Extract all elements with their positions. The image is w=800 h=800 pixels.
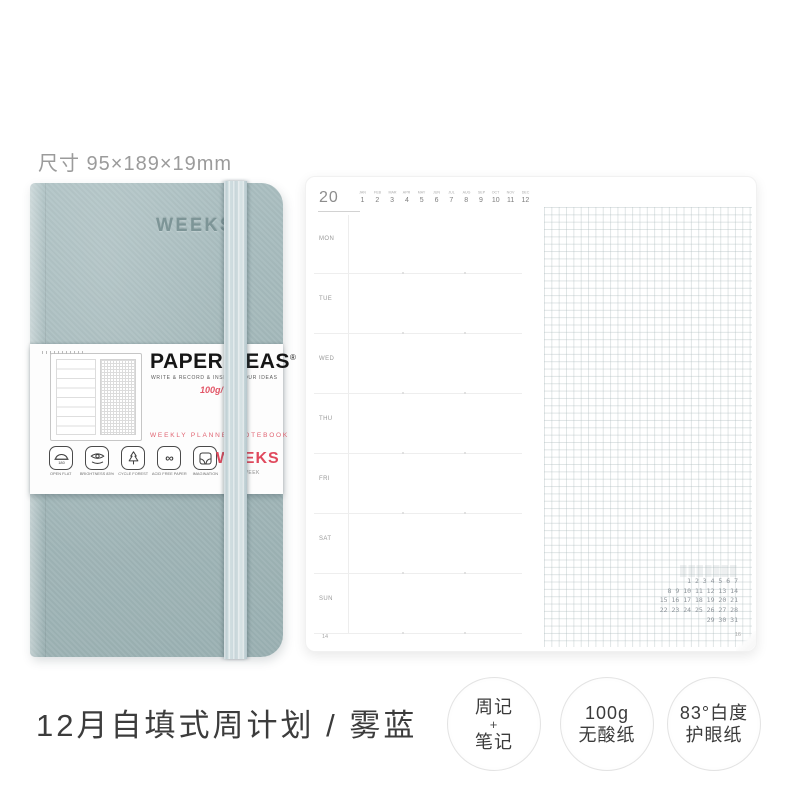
month-abbr: SEP bbox=[476, 191, 485, 195]
month-abbr: JAN bbox=[358, 191, 367, 195]
cycle-forest-icon bbox=[121, 446, 145, 470]
year-prefix: 20 bbox=[319, 189, 339, 207]
feature-imagination: IMAGINATION bbox=[192, 446, 218, 478]
month-number: 12 bbox=[519, 197, 532, 204]
mini-calendar-row: 29 30 31 bbox=[660, 616, 738, 626]
feature-cycle-forest: CYCLE FOREST bbox=[120, 446, 146, 478]
page-corner-curl bbox=[736, 631, 756, 651]
registered-mark: ® bbox=[290, 353, 296, 362]
mini-calendar-row: 15 16 17 18 19 20 21 bbox=[660, 596, 738, 606]
thumbnail-tick-marks bbox=[42, 351, 86, 354]
month-cell: MAY5 bbox=[415, 190, 428, 204]
product-caption: 12月自填式周计划 / 雾蓝 bbox=[36, 700, 417, 745]
row-separator bbox=[314, 273, 522, 274]
mini-calendar: 1 2 3 4 5 6 7 8 9 10 11 12 13 14 15 16 1… bbox=[660, 565, 738, 626]
badge-line: 笔记 bbox=[475, 731, 513, 753]
month-cell: DEC12 bbox=[519, 190, 532, 204]
thumbnail-week-rows bbox=[56, 359, 96, 435]
row-separator bbox=[314, 453, 522, 454]
brand-name: PAPERIDEAS bbox=[150, 350, 290, 373]
row-separator bbox=[314, 633, 522, 634]
month-number: 6 bbox=[430, 197, 443, 204]
badge-line: 83°白度 bbox=[680, 702, 748, 724]
svg-text:180: 180 bbox=[58, 460, 65, 465]
svg-text:∞: ∞ bbox=[165, 451, 173, 465]
row-separator bbox=[314, 573, 522, 574]
month-abbr: DEC bbox=[521, 191, 530, 195]
product-photo: 尺寸 95×189×19mm WEEKS PAPERIDEAS® WRITE &… bbox=[0, 0, 800, 800]
month-number: 10 bbox=[489, 197, 502, 204]
feature-label: ACID FREE PAPER bbox=[152, 472, 187, 477]
thumbnail-grid bbox=[100, 359, 136, 435]
day-label-thu: THU bbox=[319, 416, 333, 422]
month-abbr: JUL bbox=[447, 191, 456, 195]
day-label-sun: SUN bbox=[319, 596, 333, 602]
month-cell: APR4 bbox=[400, 190, 413, 204]
feature-label: IMAGINATION bbox=[192, 472, 217, 477]
day-label-sat: SAT bbox=[319, 536, 331, 542]
month-abbr: JUN bbox=[432, 191, 441, 195]
mini-calendar-header bbox=[680, 565, 738, 577]
month-cell: JAN1 bbox=[356, 190, 369, 204]
month-number: 5 bbox=[415, 197, 428, 204]
day-label-wed: WED bbox=[319, 356, 334, 362]
planner-thumbnail bbox=[50, 353, 142, 441]
month-cell: AUG8 bbox=[460, 190, 473, 204]
month-cell: NOV11 bbox=[504, 190, 517, 204]
badge-whiteness: 83°白度 护眼纸 bbox=[667, 677, 761, 771]
size-label: 尺寸 95×189×19mm bbox=[38, 147, 232, 176]
month-abbr: MAY bbox=[417, 191, 426, 195]
month-cell: JUN6 bbox=[430, 190, 443, 204]
imagination-icon bbox=[193, 446, 217, 470]
product-line-label: WEEKLY PLANNER NOTEBOOK bbox=[150, 432, 289, 439]
month-cell: MAR3 bbox=[386, 190, 399, 204]
feature-label: BRIGHTNESS 83% bbox=[80, 472, 114, 477]
feature-icons-row: 180 OPEN FLAT BRIGHTNESS 83% bbox=[48, 446, 218, 478]
month-number: 7 bbox=[445, 197, 458, 204]
month-abbr: FEB bbox=[373, 191, 382, 195]
plus-sign: + bbox=[490, 718, 499, 731]
mini-calendar-row: 22 23 24 25 26 27 28 bbox=[660, 606, 738, 616]
row-separator bbox=[314, 393, 522, 394]
month-number: 4 bbox=[400, 197, 413, 204]
month-abbr: OCT bbox=[491, 191, 500, 195]
month-number: 11 bbox=[504, 197, 517, 204]
feature-acid-free: ∞ ACID FREE PAPER bbox=[156, 446, 182, 478]
open-flat-icon: 180 bbox=[49, 446, 73, 470]
month-number: 1 bbox=[356, 197, 369, 204]
row-separator bbox=[314, 513, 522, 514]
page-number-left: 14 bbox=[322, 634, 328, 640]
month-number: 9 bbox=[475, 197, 488, 204]
brand-tagline: WRITE & RECORD & INSPIRE YOUR IDEAS bbox=[151, 375, 278, 381]
badge-line: 无酸纸 bbox=[579, 724, 636, 746]
month-number: 2 bbox=[371, 197, 384, 204]
feature-brightness: BRIGHTNESS 83% bbox=[84, 446, 110, 478]
row-separator bbox=[314, 333, 522, 334]
month-cell: FEB2 bbox=[371, 190, 384, 204]
mini-calendar-row: 8 9 10 11 12 13 14 bbox=[660, 587, 738, 597]
month-abbr: NOV bbox=[506, 191, 515, 195]
badge-line: 护眼纸 bbox=[686, 724, 743, 746]
feature-label: CYCLE FOREST bbox=[118, 472, 148, 477]
badge-paper-weight: 100g 无酸纸 bbox=[560, 677, 654, 771]
month-abbr: APR bbox=[402, 191, 411, 195]
month-number: 3 bbox=[386, 197, 399, 204]
elastic-band bbox=[224, 181, 247, 659]
day-label-fri: FRI bbox=[319, 476, 330, 482]
year-fill-line bbox=[318, 211, 360, 212]
badge-weekly-notes: 周记 + 笔记 bbox=[447, 677, 541, 771]
day-label-tue: TUE bbox=[319, 296, 332, 302]
planner-page: 20 JAN1 FEB2 MAR3 APR4 MAY5 JUN6 JUL7 AU… bbox=[305, 176, 757, 652]
month-number: 8 bbox=[460, 197, 473, 204]
month-cell: SEP9 bbox=[475, 190, 488, 204]
month-cell: JUL7 bbox=[445, 190, 458, 204]
day-label-mon: MON bbox=[319, 236, 334, 242]
day-column-divider bbox=[348, 215, 349, 633]
notebook: WEEKS PAPERIDEAS® WRITE & RECORD & INSPI… bbox=[30, 183, 283, 657]
month-abbr: MAR bbox=[387, 191, 396, 195]
feature-label: OPEN FLAT bbox=[50, 472, 71, 477]
cover-embossed-title: WEEKS bbox=[156, 215, 235, 236]
month-abbr: AUG bbox=[462, 191, 471, 195]
months-header: JAN1 FEB2 MAR3 APR4 MAY5 JUN6 JUL7 AUG8 … bbox=[356, 190, 532, 204]
acid-free-icon: ∞ bbox=[157, 446, 181, 470]
badge-line: 周记 bbox=[475, 696, 513, 718]
month-cell: OCT10 bbox=[489, 190, 502, 204]
feature-open-flat: 180 OPEN FLAT bbox=[48, 446, 74, 478]
mini-calendar-row: 1 2 3 4 5 6 7 bbox=[660, 577, 738, 587]
brightness-icon bbox=[85, 446, 109, 470]
badge-line: 100g bbox=[585, 702, 629, 724]
